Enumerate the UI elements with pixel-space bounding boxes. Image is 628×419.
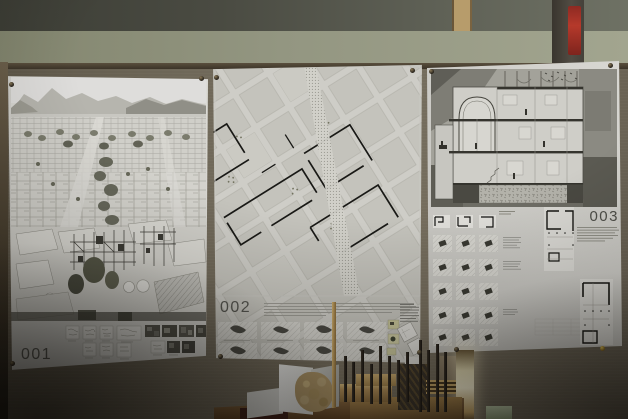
board-003: 003 [427,61,622,353]
model-plant-cluster [295,372,333,412]
model-deck [340,384,392,402]
model-column [388,356,391,404]
push-pin [10,361,15,366]
wood-frame-strip [452,0,472,31]
board-003-label: 003 [589,209,619,224]
board-003-artwork [427,61,622,353]
board-002: 002 [212,64,423,366]
table-green-object [486,406,512,419]
push-pin [429,69,434,74]
model-column [379,346,382,404]
wall-pillar [552,0,584,63]
red-marker [568,6,581,55]
model-column [427,350,430,412]
board-001: 001 [8,74,209,372]
wall-upper-light-band [0,31,628,63]
model-column [344,356,347,402]
model-column [397,360,400,402]
model-column [361,350,364,402]
board-002-label: 002 [220,300,251,316]
left-wall-edge [0,62,8,419]
push-pin [214,75,219,80]
push-pin-yellow [600,346,605,351]
scene: 001 [0,0,628,419]
push-pin [417,350,422,355]
model-mast [332,302,336,408]
push-pin [218,354,223,359]
model-column [436,344,439,412]
push-pin [9,82,14,87]
model-foamboard-panel [247,387,283,418]
model-slat-stack [426,380,456,394]
push-pin [454,347,459,352]
wall-upper-dark-band [0,0,628,31]
aerial-town-perspective [11,77,206,321]
model-column [406,352,409,402]
model-column [352,362,355,402]
model-dark-structure [398,364,428,410]
push-pin [199,76,204,81]
board-001-artwork [8,74,209,372]
push-pin [608,63,613,68]
board-002-artwork [212,64,423,366]
push-pin [410,68,415,73]
board-001-label: 001 [21,347,52,363]
plan-lower [580,279,613,345]
model-column [370,364,373,404]
section-perspective-drawing [431,69,617,207]
model-column [444,352,447,412]
plan-upper [544,207,574,271]
